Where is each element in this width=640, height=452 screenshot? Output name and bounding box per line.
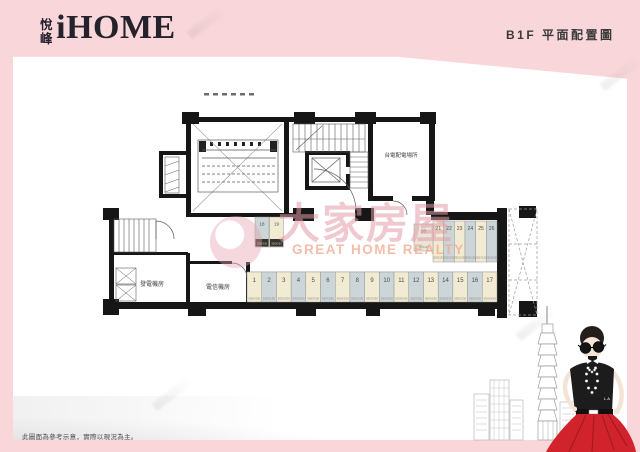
right-arm xyxy=(613,372,622,412)
right-hand xyxy=(614,409,619,414)
floorplan-page: 台電配電場所 發電機房 電信機房 1550X2302550X2303550X23… xyxy=(0,0,640,452)
taipei-101 xyxy=(538,306,557,440)
red-skirt xyxy=(546,414,636,452)
belt-buckle xyxy=(589,410,598,414)
fashion-woman: LA xyxy=(546,326,636,452)
disclaimer-text: 此圖面為參考示意，實際以現況為主。 xyxy=(22,431,138,441)
shirt-text: LA xyxy=(604,396,611,401)
sunglasses-left-lens xyxy=(580,343,591,354)
sunglasses-right-lens xyxy=(593,342,604,353)
left-hand xyxy=(572,406,577,411)
black-top xyxy=(570,362,614,412)
fashion-illustration: LA xyxy=(0,0,640,452)
